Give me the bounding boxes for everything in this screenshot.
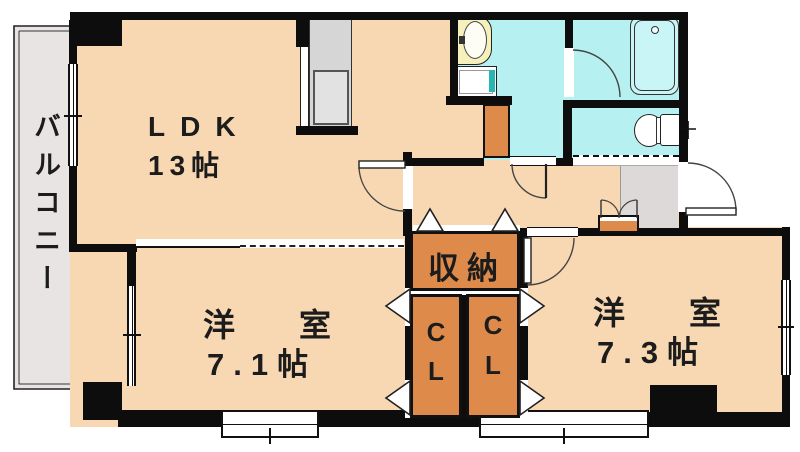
wall <box>563 100 572 162</box>
door-opening <box>564 48 574 97</box>
window-tick <box>269 428 271 444</box>
window <box>127 286 136 386</box>
ldk-label: LDK <box>148 111 251 143</box>
wall <box>69 164 77 252</box>
room-boundary-dashed <box>240 245 404 247</box>
door-opening <box>403 166 413 209</box>
wall <box>296 126 358 135</box>
window-tick <box>563 428 565 444</box>
washer-tap-icon <box>489 70 495 92</box>
wash-basin-bowl <box>463 21 487 59</box>
closet-opening <box>520 288 528 326</box>
bathtub-drain-icon <box>651 26 659 34</box>
toilet-tank <box>660 114 681 146</box>
wall <box>679 12 688 163</box>
window-tick <box>64 115 82 117</box>
wall <box>83 382 122 420</box>
wall <box>679 211 688 236</box>
ldk-size: 13帖 <box>148 144 225 184</box>
sliding-door-track <box>510 156 556 166</box>
kitchen-counter-edge <box>300 45 309 129</box>
wall <box>556 158 574 166</box>
wall <box>563 100 688 108</box>
entrance-door-leaf <box>686 208 736 215</box>
room-boundary-line <box>136 246 240 248</box>
entrance-door-arc <box>688 163 736 211</box>
shoe-cabinet <box>598 215 639 233</box>
washing-machine-pan-inner <box>459 70 493 94</box>
window-tick <box>123 334 141 336</box>
column <box>483 104 510 158</box>
ldk-nook-floor <box>450 105 483 160</box>
wall <box>450 12 458 102</box>
floor-plan: バルコニー LDK 13帖 洋室 7.1帖 洋室 7.3帖 収納 C L C L <box>0 0 800 452</box>
closet-right-label-c: C <box>480 310 506 341</box>
pillar <box>650 385 717 417</box>
door-opening <box>527 227 578 237</box>
wall <box>70 12 688 20</box>
closet-left-label-l: L <box>423 356 449 387</box>
balcony-label: バルコニー <box>26 112 65 302</box>
wall <box>70 12 122 46</box>
toilet-door-dashed <box>573 155 679 166</box>
faucet-icon <box>459 36 465 44</box>
wall <box>403 158 484 166</box>
wall <box>127 244 136 286</box>
kitchen-sink <box>313 70 349 125</box>
wall <box>296 12 309 47</box>
wall <box>565 12 573 50</box>
closet-opening <box>520 380 528 418</box>
closet-left-label-c: C <box>423 317 449 348</box>
storage-label: 収納 <box>428 243 506 288</box>
room71-size: 7.1帖 <box>207 339 317 384</box>
door-opening <box>678 162 689 212</box>
shoe-cabinet-top <box>600 217 637 221</box>
room73-size: 7.3帖 <box>597 327 707 372</box>
wall <box>69 20 77 66</box>
closet-right-label-l: L <box>480 350 506 381</box>
